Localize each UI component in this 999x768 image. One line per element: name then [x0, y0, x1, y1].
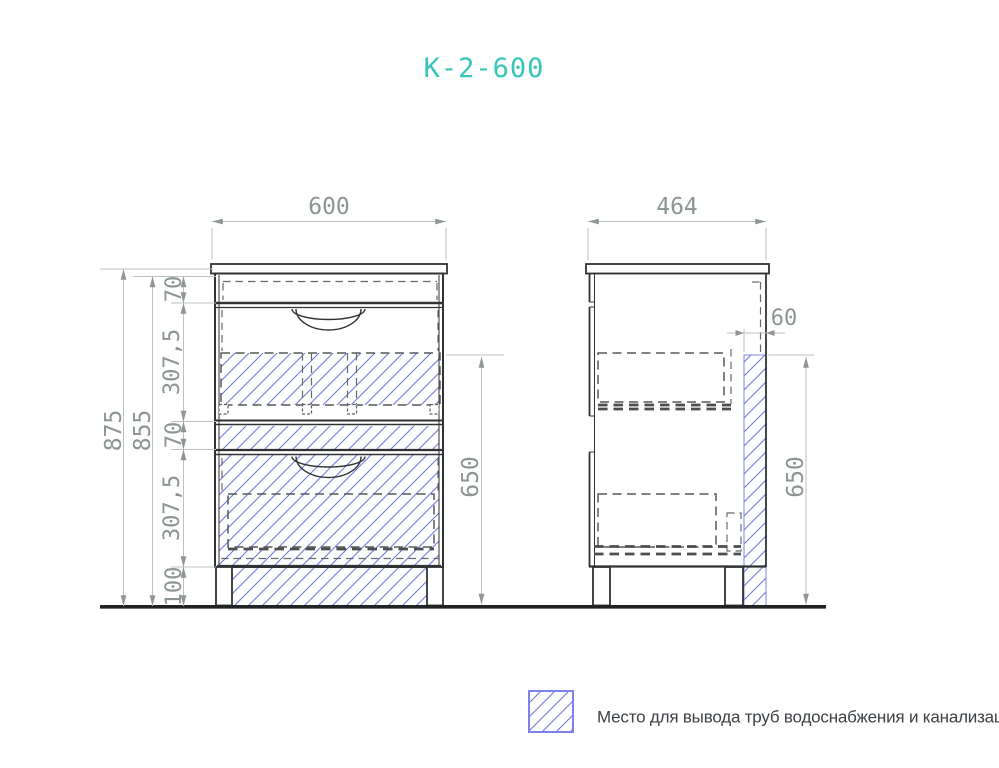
dim-text-drawer1: 307,5 — [160, 329, 185, 395]
arrow-60-left — [736, 330, 745, 336]
dim-text-pipe-height-side: 650 — [783, 456, 809, 498]
front-slide-cap-2 — [303, 405, 312, 415]
front-leg-left — [216, 567, 232, 606]
front-view — [211, 264, 447, 606]
front-pipe-zone-hatch-drawer1 — [221, 353, 440, 405]
legend-label: Место для вывода труб водоснабжения и ка… — [597, 708, 999, 727]
dim-text-top-rail: 70 — [162, 276, 187, 303]
side-drawer2-dashed-box — [598, 494, 716, 547]
front-pipe-zone-hatch-plinth — [232, 567, 427, 606]
front-pipe-zone-hatch-gap — [219, 426, 439, 450]
dim-text-legs: 100 — [162, 567, 187, 607]
dim-text-total-height: 875 — [101, 410, 127, 452]
dim-text-body-height: 855 — [130, 410, 156, 452]
front-leg-right — [427, 567, 443, 606]
side-view — [586, 264, 769, 606]
side-drawer1-dashed-box — [598, 353, 724, 402]
front-slide-cap-4 — [430, 405, 439, 415]
side-leg-front — [593, 567, 610, 606]
side-pipe-zone-hatch — [744, 355, 766, 606]
front-slide-cap-1 — [219, 405, 228, 415]
legend: Место для вывода труб водоснабжения и ка… — [529, 691, 999, 732]
front-slide-cap-3 — [348, 405, 357, 415]
legend-hatch-swatch — [529, 691, 573, 732]
technical-drawing-page: 600 875 855 70 307,5 70 307,5 100 650 — [0, 0, 999, 768]
side-countertop — [586, 264, 769, 274]
side-dimensions: 464 60 650 — [588, 194, 814, 605]
front-drawer1-handle-lip — [292, 309, 365, 320]
dim-text-gap: 70 — [162, 422, 187, 449]
dim-text-front-width: 600 — [308, 194, 350, 220]
drawing-canvas: 600 875 855 70 307,5 70 307,5 100 650 — [0, 0, 999, 768]
dim-text-drawer2: 307,5 — [160, 475, 185, 541]
dim-text-depth: 464 — [656, 194, 698, 220]
drawing-title: К-2-600 — [424, 53, 545, 84]
side-leg-back — [725, 567, 743, 606]
dim-text-pipe-depth: 60 — [771, 306, 798, 331]
front-countertop — [211, 264, 447, 274]
dim-text-pipe-height-front: 650 — [458, 456, 484, 498]
